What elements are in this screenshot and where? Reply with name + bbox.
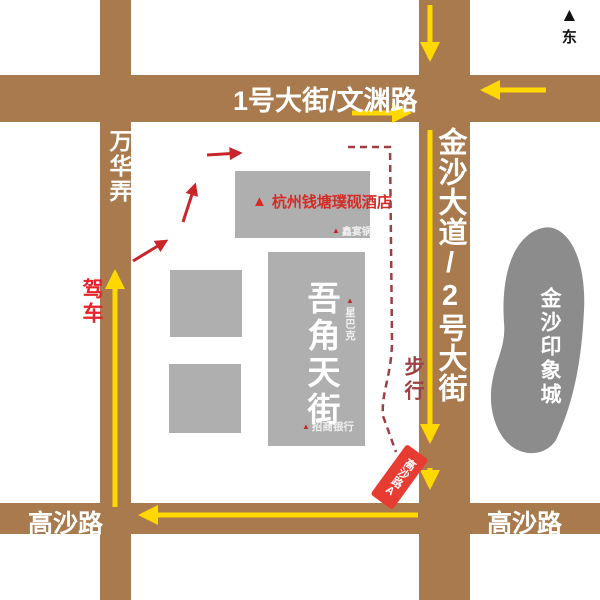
building-block-2 (169, 364, 241, 433)
poi-marker-icon: ▲ (332, 227, 340, 235)
compass: ▲ 东 (560, 6, 579, 47)
poi-hotpot-name: 鑫宴锅 (342, 223, 372, 238)
road-label-wanhua-lane: 万华弄 (102, 129, 136, 204)
metro-exit-name: 高沙路A (382, 456, 417, 499)
driving-route-label: 驾车 (76, 278, 106, 326)
driving-approach-arrow-1 (133, 241, 166, 261)
poi-hotpot: ▲ 鑫宴锅 (332, 223, 372, 238)
poi-starbucks-name: 星巴克 (343, 307, 358, 342)
road-label-no1-avenue: 1号大街/文渊路 (233, 79, 418, 118)
driving-approach-arrow-2 (183, 185, 195, 222)
building-block-1 (170, 270, 242, 337)
impression-city-label: 金沙印象城 (534, 287, 564, 407)
poi-marker-icon: ▲ (346, 297, 355, 305)
road-label-gaosha-left: 高沙路 (28, 504, 103, 540)
poi-starbucks: ▲ 星巴克 (343, 297, 358, 342)
road-label-gaosha-right: 高沙路 (487, 504, 562, 540)
hotel-name: 杭州钱塘璞砚酒店 (272, 191, 392, 212)
hotel-logo-icon: ▲ (252, 194, 267, 209)
road-label-jinsha-avenue: 金沙大道/2号大街 (429, 127, 471, 403)
compass-arrow-icon: ▲ (560, 6, 579, 25)
hotel-label: ▲ 杭州钱塘璞砚酒店 (252, 191, 392, 212)
driving-approach-arrow-3 (207, 153, 240, 155)
direction-map: 万华弄 1号大街/文渊路 金沙大道/2号大街 高沙路 高沙路 ▲ 杭州钱塘璞砚酒… (0, 0, 600, 600)
walking-route-label: 步行 (398, 356, 427, 404)
mall-label: 吾角天街 (297, 281, 345, 429)
compass-direction: 东 (562, 26, 577, 47)
